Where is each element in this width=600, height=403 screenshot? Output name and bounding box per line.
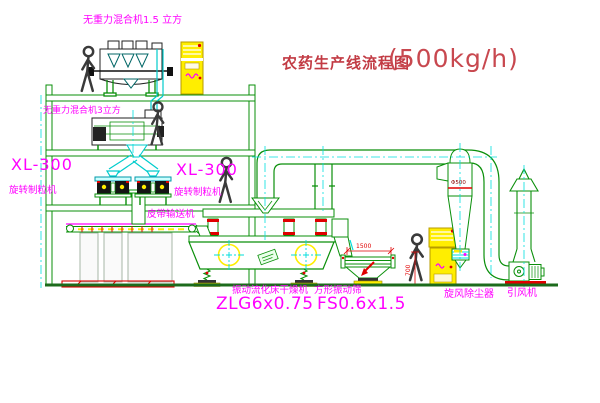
sieve-length-dimension: 1500 [356, 243, 371, 250]
floor-beam-mid [46, 150, 255, 156]
granulator-left-name-label: 旋转制粒机 [9, 186, 57, 196]
granulator-left-drawing [95, 177, 131, 205]
cad-drawing-canvas: 农药生产线流程图 (500kg/h) 无重力混合机1.5 立方 无重力混合机3立… [0, 0, 600, 403]
fan-label: 引风机 [507, 289, 537, 299]
splitter-v-duct [107, 155, 159, 176]
cyclone-diameter-dimension: Φ500 [451, 180, 466, 186]
draft-fan-drawing [505, 262, 546, 285]
top-mixer-drawing [88, 41, 173, 96]
vibrating-sieve-drawing [341, 240, 419, 285]
cyclone-label: 旋风除尘器 [444, 290, 494, 300]
granulator-left-model-label: XL-300 [11, 157, 73, 173]
drawing-title-capacity: (500kg/h) [388, 44, 519, 73]
mid-mixer-label: 无重力混合机3立方 [43, 107, 121, 116]
sieve-height-dimension: 700 [405, 265, 412, 276]
control-cabinet-top [181, 42, 203, 94]
sieve-model-label: FS0.6x1.5 [317, 296, 406, 313]
dryer-model-label: ZLG6x0.75 [216, 296, 314, 313]
fluid-bed-dryer-drawing [189, 198, 352, 287]
granulator-right-drawing [135, 177, 171, 205]
support-piers [80, 233, 172, 282]
conveyor-label: 皮带输送机 [147, 210, 195, 220]
granulator-mid-name-label: 旋转制粒机 [174, 188, 222, 198]
granulator-mid-model-label: XL-300 [176, 162, 238, 178]
top-mixer-label: 无重力混合机1.5 立方 [83, 16, 182, 26]
dryer-discharge-chute [334, 237, 352, 256]
